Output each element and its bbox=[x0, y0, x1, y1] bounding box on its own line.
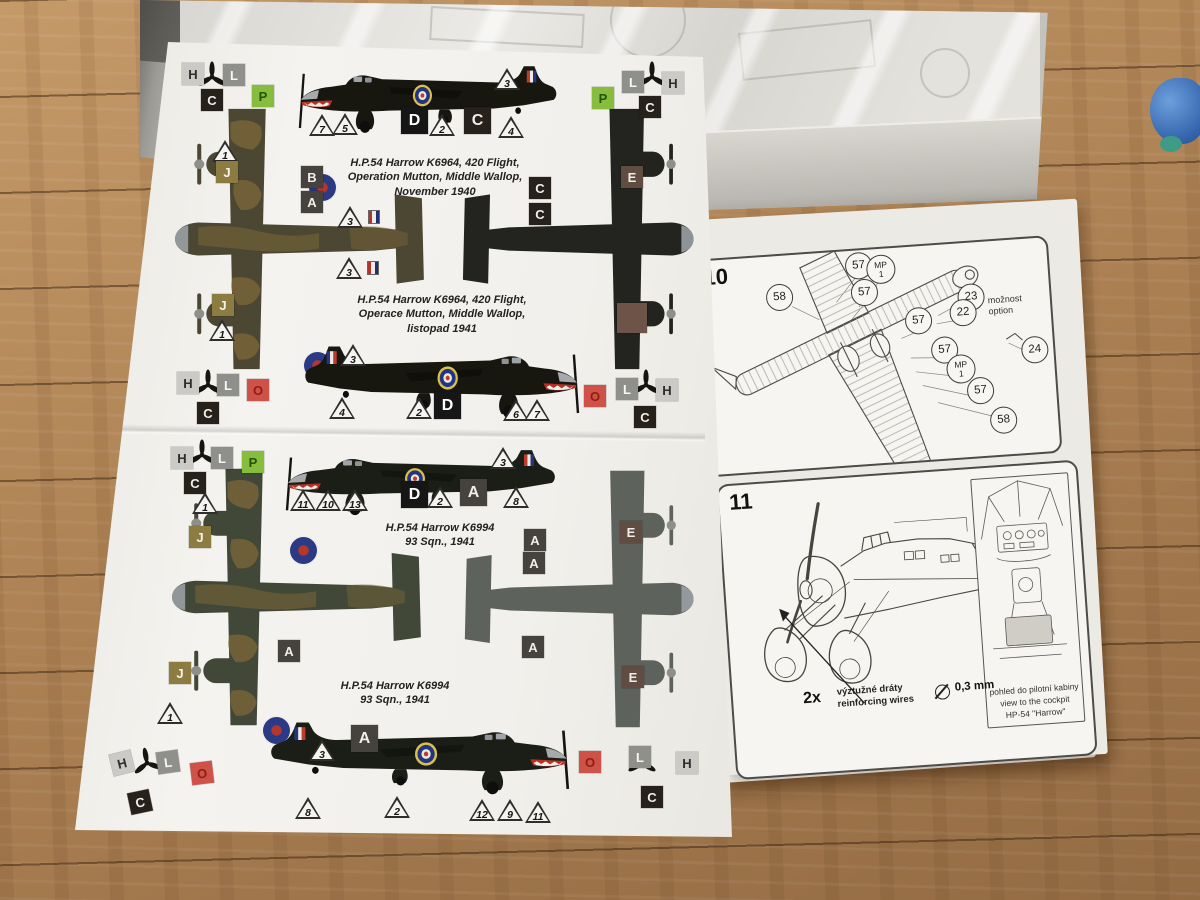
color-chip-E: E bbox=[620, 521, 642, 543]
painting-guide-sheet: H L C P P L H C 3 7 5 D 2 C 4 H.P.54 Har… bbox=[60, 35, 740, 845]
color-chip-D: D bbox=[401, 107, 428, 134]
triangle-marker: 2 bbox=[384, 796, 410, 818]
color-chip-L: L bbox=[629, 746, 651, 768]
color-chip-J: J bbox=[169, 662, 191, 684]
quantity-label: 2x bbox=[803, 690, 822, 707]
triangle-marker: 1 bbox=[192, 492, 218, 514]
triangle-marker: 13 bbox=[342, 489, 368, 511]
color-chip-A: A bbox=[278, 640, 300, 662]
fin-flash-icon bbox=[367, 261, 379, 275]
teal-object bbox=[1160, 136, 1182, 152]
color-chip-L: L bbox=[616, 378, 638, 400]
triangle-marker: 1 bbox=[212, 140, 238, 162]
instruction-booklet-page: 10 57 MP1 58 57 23 22 možnostoption 57 5… bbox=[676, 202, 1096, 783]
color-chip-L: L bbox=[217, 374, 239, 396]
color-chip-O: O bbox=[584, 385, 606, 407]
triangle-marker: 8 bbox=[503, 486, 529, 508]
sprue-part bbox=[429, 6, 585, 48]
triangle-marker: 3 bbox=[336, 257, 362, 279]
color-chip-L: L bbox=[223, 64, 245, 86]
color-chip-H: H bbox=[171, 447, 193, 469]
color-chip-P: P bbox=[252, 85, 274, 107]
color-chip-O: O bbox=[579, 751, 601, 773]
color-chip-A: A bbox=[301, 191, 323, 213]
triangle-marker: 2 bbox=[427, 486, 453, 508]
triangle-marker: 2 bbox=[429, 114, 455, 136]
triangle-marker: 10 bbox=[315, 489, 341, 511]
color-chip-H: H bbox=[177, 372, 199, 394]
color-swatch-brown bbox=[617, 303, 647, 333]
option-note: možnostoption bbox=[987, 293, 1022, 317]
color-chip-A: A bbox=[523, 552, 545, 574]
color-chip-H: H bbox=[662, 72, 684, 94]
assembly-step-11-panel: 11 bbox=[716, 460, 1098, 781]
triangle-marker: 3 bbox=[337, 206, 363, 228]
color-chip-J: J bbox=[212, 294, 234, 316]
triangle-marker: 3 bbox=[490, 447, 516, 469]
color-chip-D: D bbox=[401, 481, 428, 508]
side-profile-k6994-starboard bbox=[260, 719, 570, 803]
cockpit-caption: pohled do pilotní kabiny view to the coc… bbox=[988, 681, 1082, 723]
color-chip-P: P bbox=[592, 87, 614, 109]
color-chip-B: B bbox=[301, 166, 323, 188]
color-chip-L: L bbox=[211, 447, 233, 469]
scheme2-caption-bottom: H.P.54 Harrow K6994 93 Sqn., 1941 bbox=[275, 679, 515, 708]
color-chip-D: D bbox=[434, 392, 461, 419]
photo-scene: 10 57 MP1 58 57 23 22 možnostoption 57 5… bbox=[0, 0, 1200, 900]
triangle-marker: 3 bbox=[309, 739, 335, 761]
triangle-marker: 4 bbox=[329, 397, 355, 419]
roundel bbox=[290, 537, 317, 564]
triangle-marker: 7 bbox=[524, 399, 550, 421]
color-chip-H: H bbox=[656, 379, 678, 401]
assembly-step-10-panel: 10 57 MP1 58 57 23 22 možnostoption 57 5… bbox=[690, 235, 1062, 477]
color-chip-E: E bbox=[621, 166, 643, 188]
color-chip-H: H bbox=[676, 752, 698, 774]
color-chip-C: C bbox=[201, 89, 223, 111]
color-chip-C: C bbox=[634, 406, 656, 428]
triangle-marker: 8 bbox=[295, 797, 321, 819]
sprue-part bbox=[920, 48, 970, 98]
color-chip-O: O bbox=[190, 761, 215, 786]
sprue-part bbox=[610, 0, 686, 58]
triangle-marker: 1 bbox=[209, 319, 235, 341]
color-chip-H: H bbox=[182, 63, 204, 85]
triangle-marker: 3 bbox=[340, 344, 366, 366]
triangle-marker: 5 bbox=[332, 113, 358, 135]
scheme1-caption-czech: H.P.54 Harrow K6964, 420 Flight, Operace… bbox=[317, 293, 567, 336]
color-chip-C: C bbox=[197, 402, 219, 424]
triangle-marker: 4 bbox=[498, 116, 524, 138]
color-chip-A: A bbox=[524, 529, 546, 551]
color-chip-A: A bbox=[351, 725, 378, 752]
color-chip-E: E bbox=[622, 666, 644, 688]
color-chip-C: C bbox=[184, 472, 206, 494]
color-chip-C: C bbox=[464, 107, 491, 134]
color-chip-C: C bbox=[529, 177, 551, 199]
triangle-marker: 1 bbox=[157, 702, 183, 724]
color-chip-L: L bbox=[156, 750, 181, 775]
color-chip-O: O bbox=[247, 379, 269, 401]
step-number: 11 bbox=[728, 488, 753, 516]
color-chip-P: P bbox=[242, 451, 264, 473]
fin-flash-icon bbox=[368, 210, 380, 224]
triangle-marker: 3 bbox=[494, 68, 520, 90]
color-chip-C: C bbox=[641, 786, 663, 808]
triangle-marker: 11 bbox=[525, 801, 551, 823]
color-chip-A: A bbox=[522, 636, 544, 658]
color-chip-C: C bbox=[639, 96, 661, 118]
color-chip-L: L bbox=[622, 71, 644, 93]
color-chip-J: J bbox=[216, 161, 238, 183]
color-chip-J: J bbox=[189, 526, 211, 548]
triangle-marker: 2 bbox=[406, 397, 432, 419]
scheme1-caption-english: H.P.54 Harrow K6964, 420 Flight, Operati… bbox=[310, 156, 560, 199]
cockpit-interior-drawing bbox=[971, 474, 1077, 670]
color-chip-A: A bbox=[460, 479, 487, 506]
triangle-marker: 9 bbox=[497, 799, 523, 821]
color-chip-C: C bbox=[127, 789, 153, 815]
triangle-marker: 11 bbox=[290, 489, 316, 511]
color-chip-C: C bbox=[529, 203, 551, 225]
triangle-marker: 12 bbox=[469, 799, 495, 821]
sprue-part bbox=[738, 19, 876, 81]
